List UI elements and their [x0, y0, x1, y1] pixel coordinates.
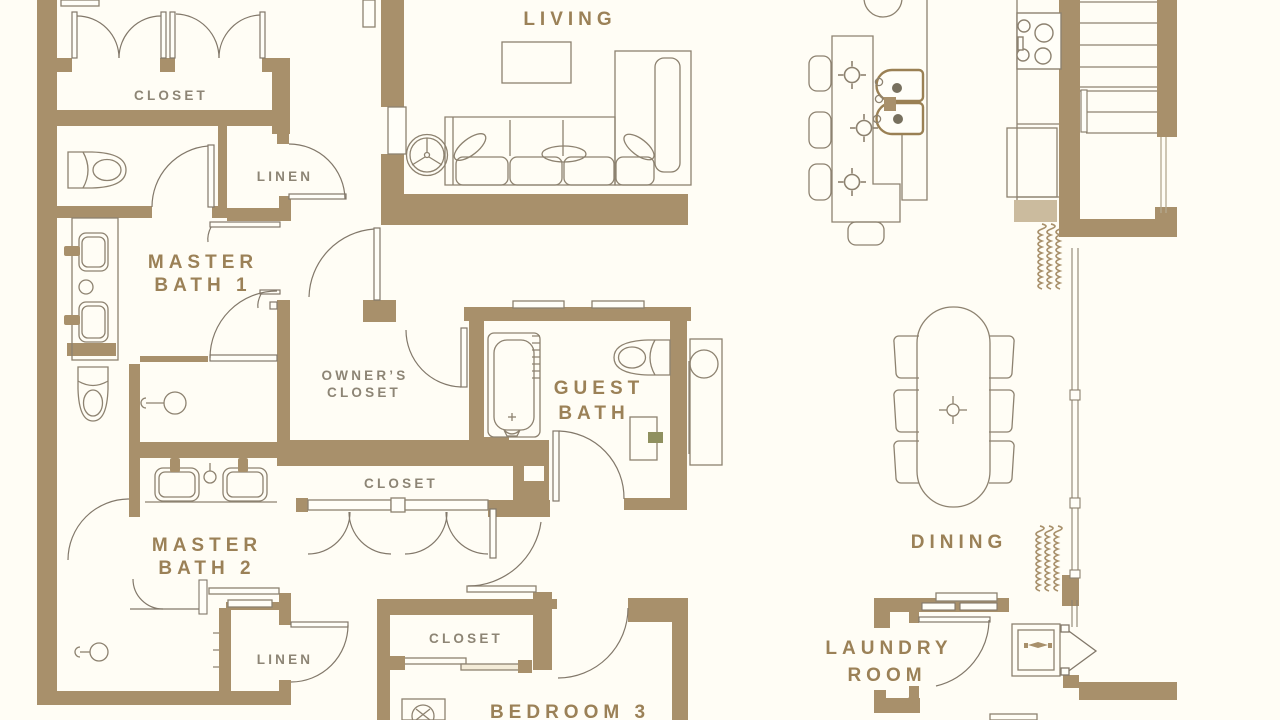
svg-text:DINING: DINING [911, 532, 1008, 553]
svg-text:LIVING: LIVING [523, 9, 616, 30]
svg-text:BATH 1: BATH 1 [154, 275, 251, 296]
svg-text:ROOM: ROOM [847, 665, 926, 686]
svg-text:CLOSET: CLOSET [429, 631, 503, 646]
svg-text:GUEST: GUEST [554, 378, 644, 399]
svg-text:LINEN: LINEN [257, 169, 314, 184]
svg-text:CLOSET: CLOSET [364, 476, 438, 491]
svg-text:BEDROOM 3: BEDROOM 3 [490, 702, 650, 720]
svg-text:CLOSET: CLOSET [134, 88, 208, 103]
svg-text:MASTER: MASTER [148, 252, 258, 273]
svg-text:BATH 2: BATH 2 [158, 558, 255, 579]
svg-text:OWNER’S: OWNER’S [322, 368, 409, 383]
svg-text:LINEN: LINEN [257, 652, 314, 667]
svg-text:CLOSET: CLOSET [327, 385, 401, 400]
svg-text:LAUNDRY: LAUNDRY [825, 638, 952, 659]
svg-text:BATH: BATH [558, 403, 629, 424]
svg-text:MASTER: MASTER [152, 535, 262, 556]
